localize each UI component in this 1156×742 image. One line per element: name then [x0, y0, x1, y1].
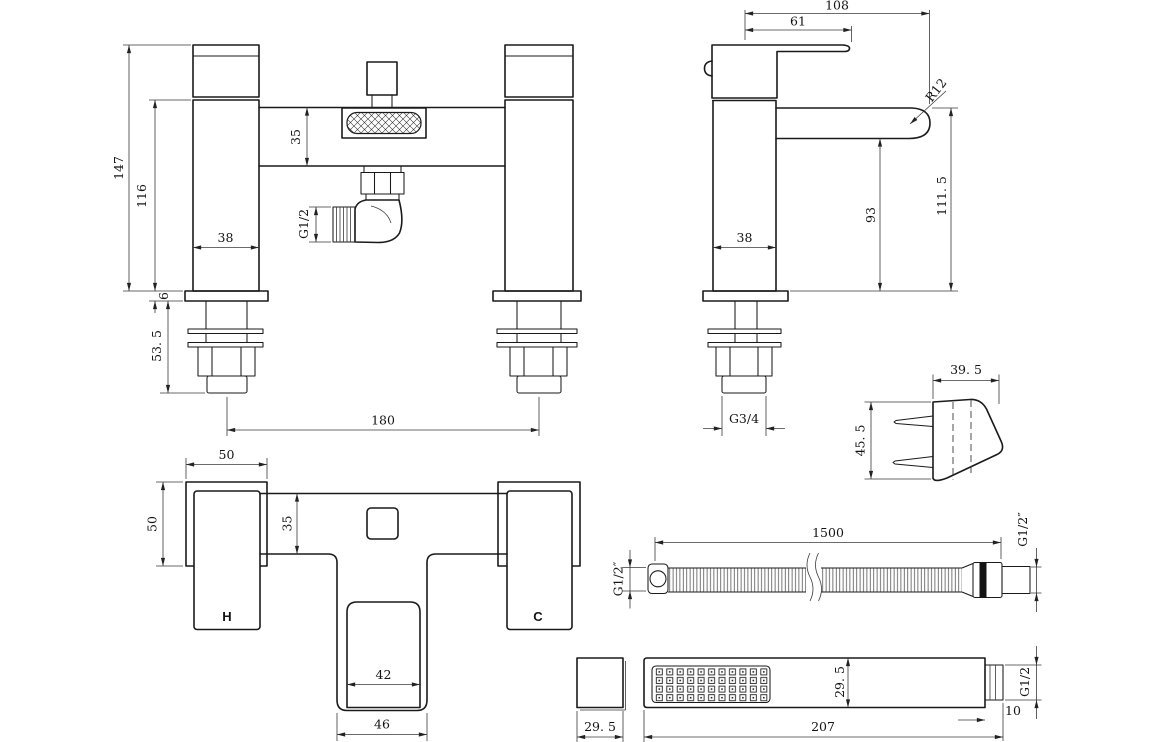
handset-thread-neck	[985, 665, 1003, 700]
plan-diverter-button	[367, 508, 398, 539]
technical-drawing: 147 116 6 53. 5 35 G1/2 38 180	[0, 0, 1156, 742]
front-dimensions: 147 116 6 53. 5 35 G1/2 38 180	[111, 45, 539, 436]
shower-outlet-elbow	[333, 166, 404, 243]
handset-dimensions: 29. 5 29. 5 G1/2 10 207	[577, 646, 1042, 742]
bracket-dimensions: 39. 5 45. 5	[853, 362, 1000, 479]
dim-front-outlet-thread: G1/2	[296, 209, 311, 239]
drawing-canvas: 147 116 6 53. 5 35 G1/2 38 180	[0, 0, 1156, 742]
hose-view: 1500 G1/2″ G1/2″	[611, 512, 1042, 612]
dim-plan-handle-width: 50	[219, 447, 235, 462]
front-left-tail	[185, 291, 268, 393]
dim-front-body-height: 116	[134, 184, 149, 208]
dim-hose-right-thread: G1/2″	[1015, 512, 1030, 547]
side-view: 108 61 R12 111. 5 93 38 G3/4	[703, 0, 958, 436]
hose-break-gap	[806, 555, 821, 603]
side-tail	[703, 291, 788, 393]
dim-plan-spout-inner: 42	[376, 667, 392, 682]
dim-side-height-spout-top: 111. 5	[934, 176, 949, 216]
side-body	[713, 101, 776, 292]
side-handle	[705, 45, 850, 101]
front-view: 147 116 6 53. 5 35 G1/2 38 180	[111, 45, 581, 436]
hose-right-connector	[1002, 567, 1030, 594]
dim-front-tail-length: 53. 5	[149, 330, 164, 362]
dim-side-total-depth: 108	[825, 0, 849, 13]
knurled-insert	[342, 108, 426, 138]
bracket-upper-prong	[894, 416, 933, 427]
plan-body-outline	[260, 554, 507, 711]
hose-right-band	[980, 563, 987, 598]
dim-bracket-depth: 39. 5	[950, 362, 982, 377]
handset-view: 29. 5 29. 5 G1/2 10 207	[577, 646, 1042, 742]
hose-dimensions: 1500 G1/2″ G1/2″	[611, 512, 1042, 612]
dim-front-total-height: 147	[111, 156, 126, 180]
plan-dimensions: 50 50 35 42 46	[145, 447, 428, 741]
bracket-body	[933, 399, 1003, 480]
dim-plan-body-width: 35	[280, 516, 295, 532]
side-spout	[776, 108, 930, 139]
dim-side-body-depth: 38	[737, 230, 753, 245]
dim-side-spout-radius: R12	[922, 75, 949, 104]
dim-side-tail-thread: G3/4	[729, 411, 759, 426]
dim-handset-thread: G1/2	[1017, 667, 1032, 697]
plan-spout	[347, 602, 420, 708]
dim-handset-body-size: 29. 5	[832, 666, 847, 698]
dim-hose-length: 1500	[812, 525, 844, 540]
dim-front-base-thickness: 6	[156, 292, 171, 300]
hot-label: H	[222, 609, 231, 624]
wall-bracket-view: 39. 5 45. 5	[853, 362, 1003, 480]
hose-right-nut	[973, 563, 1002, 598]
plan-view: H C 50 50 35 42 46	[145, 447, 581, 741]
front-right-pillar	[505, 45, 573, 291]
dim-front-pillar-width: 38	[218, 230, 234, 245]
dim-handset-length: 207	[811, 719, 835, 734]
dim-handset-thread-length: 10	[1005, 703, 1021, 718]
dim-side-handle-reach: 61	[790, 14, 806, 29]
handset-nozzles	[655, 668, 770, 702]
dim-front-bar-height: 35	[288, 129, 303, 145]
cold-label: C	[533, 609, 543, 624]
dim-plan-handle-depth: 50	[145, 516, 160, 532]
hose-left-nut	[648, 564, 668, 594]
dim-hose-left-thread: G1/2″	[611, 561, 626, 596]
handset-end-view	[577, 658, 623, 708]
front-left-pillar	[193, 45, 259, 291]
diverter-knob	[367, 62, 397, 108]
dim-plan-spout-outer: 46	[374, 717, 390, 732]
bracket-lower-prong	[893, 457, 933, 468]
dim-side-height-spout-under: 93	[863, 207, 878, 223]
dim-handset-face-size: 29. 5	[584, 719, 616, 734]
front-right-tail	[493, 291, 581, 393]
dim-bracket-height: 45. 5	[853, 425, 868, 457]
hose-left-swivel	[650, 571, 666, 587]
dim-front-centres: 180	[371, 413, 395, 428]
side-dimensions: 108 61 R12 111. 5 93 38 G3/4	[703, 0, 958, 436]
